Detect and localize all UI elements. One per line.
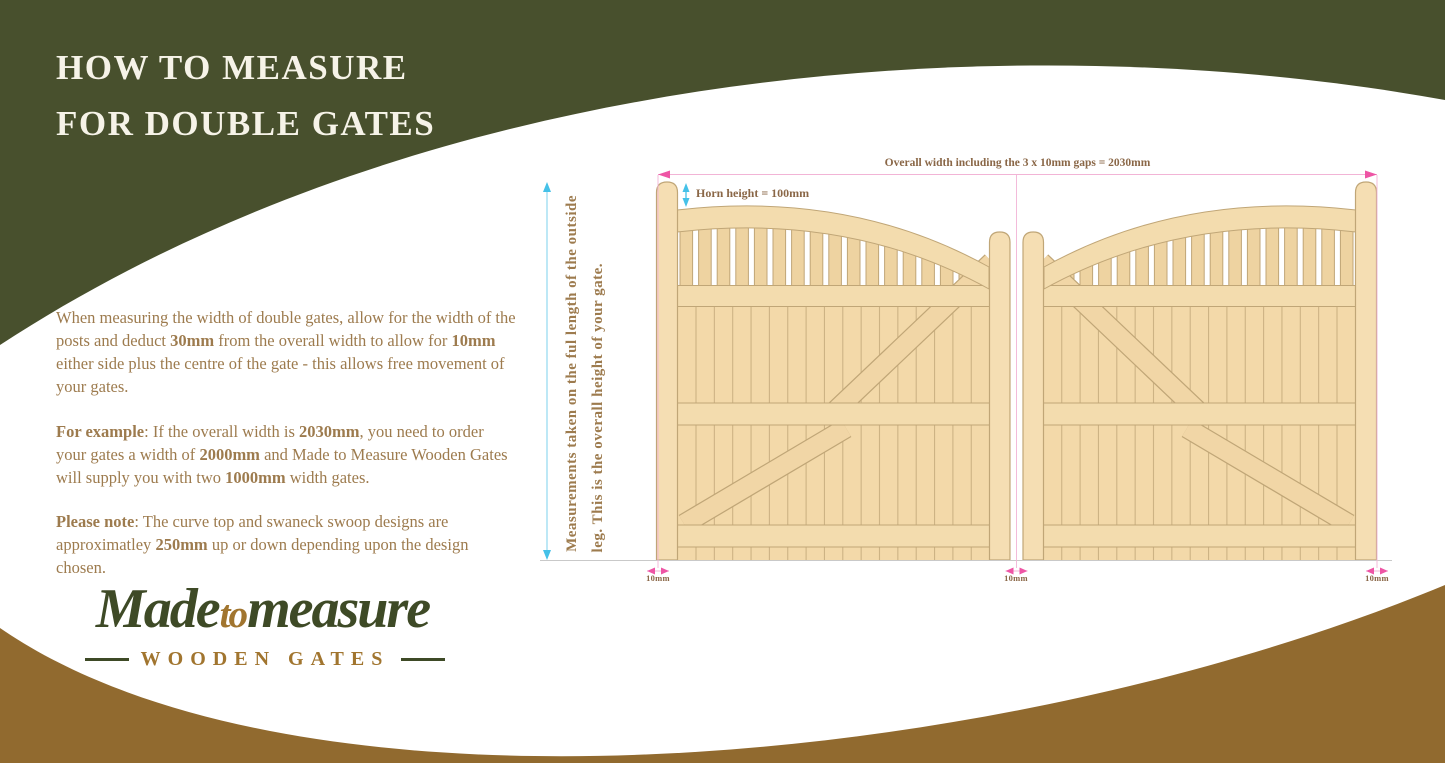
page-title-line1: HOW TO MEASURE bbox=[56, 40, 435, 96]
gate-outer-stile bbox=[657, 182, 678, 560]
gate-rail bbox=[1044, 525, 1356, 547]
height-note-line1: Measurements taken on the ful length of … bbox=[564, 195, 581, 552]
intro-paragraph: When measuring the width of double gates… bbox=[56, 306, 518, 398]
gate-centre-stile bbox=[1023, 232, 1044, 560]
example-paragraph: For example: If the overall width is 203… bbox=[56, 420, 518, 489]
gap-label-centre: 10mm bbox=[994, 573, 1038, 583]
poster-canvas: HOW TO MEASURE FOR DOUBLE GATES When mea… bbox=[0, 0, 1445, 763]
tagline-rule-right bbox=[401, 658, 445, 661]
gate-centre-stile bbox=[990, 232, 1011, 560]
page-title: HOW TO MEASURE FOR DOUBLE GATES bbox=[56, 40, 435, 152]
note-paragraph: Please note: The curve top and swaneck s… bbox=[56, 510, 518, 579]
gate-rail bbox=[678, 525, 990, 547]
gate-outer-stile bbox=[1356, 182, 1377, 560]
logo-word-made: Made bbox=[96, 578, 219, 640]
gap-label-right: 10mm bbox=[1355, 573, 1399, 583]
brand-logo-wordmark: Madetomeasure bbox=[40, 576, 485, 648]
brand-logo-tagline: WOODEN GATES bbox=[85, 648, 445, 671]
tagline-rule-left bbox=[85, 658, 129, 661]
overall-width-label: Overall width including the 3 x 10mm gap… bbox=[658, 157, 1377, 169]
gap-label-left: 10mm bbox=[636, 573, 680, 583]
logo-word-to: to bbox=[220, 593, 246, 636]
logo-word-measure: measure bbox=[247, 578, 429, 640]
gate-rail bbox=[678, 403, 990, 425]
page-title-line2: FOR DOUBLE GATES bbox=[56, 96, 435, 152]
gate-rail bbox=[678, 286, 990, 307]
gate-rail bbox=[1044, 286, 1356, 307]
horn-height-label: Horn height = 100mm bbox=[696, 186, 809, 201]
tagline-text: WOODEN GATES bbox=[141, 648, 390, 671]
gate-rail bbox=[1044, 403, 1356, 425]
height-note-line2: leg. This is the overall height of your … bbox=[590, 263, 607, 552]
